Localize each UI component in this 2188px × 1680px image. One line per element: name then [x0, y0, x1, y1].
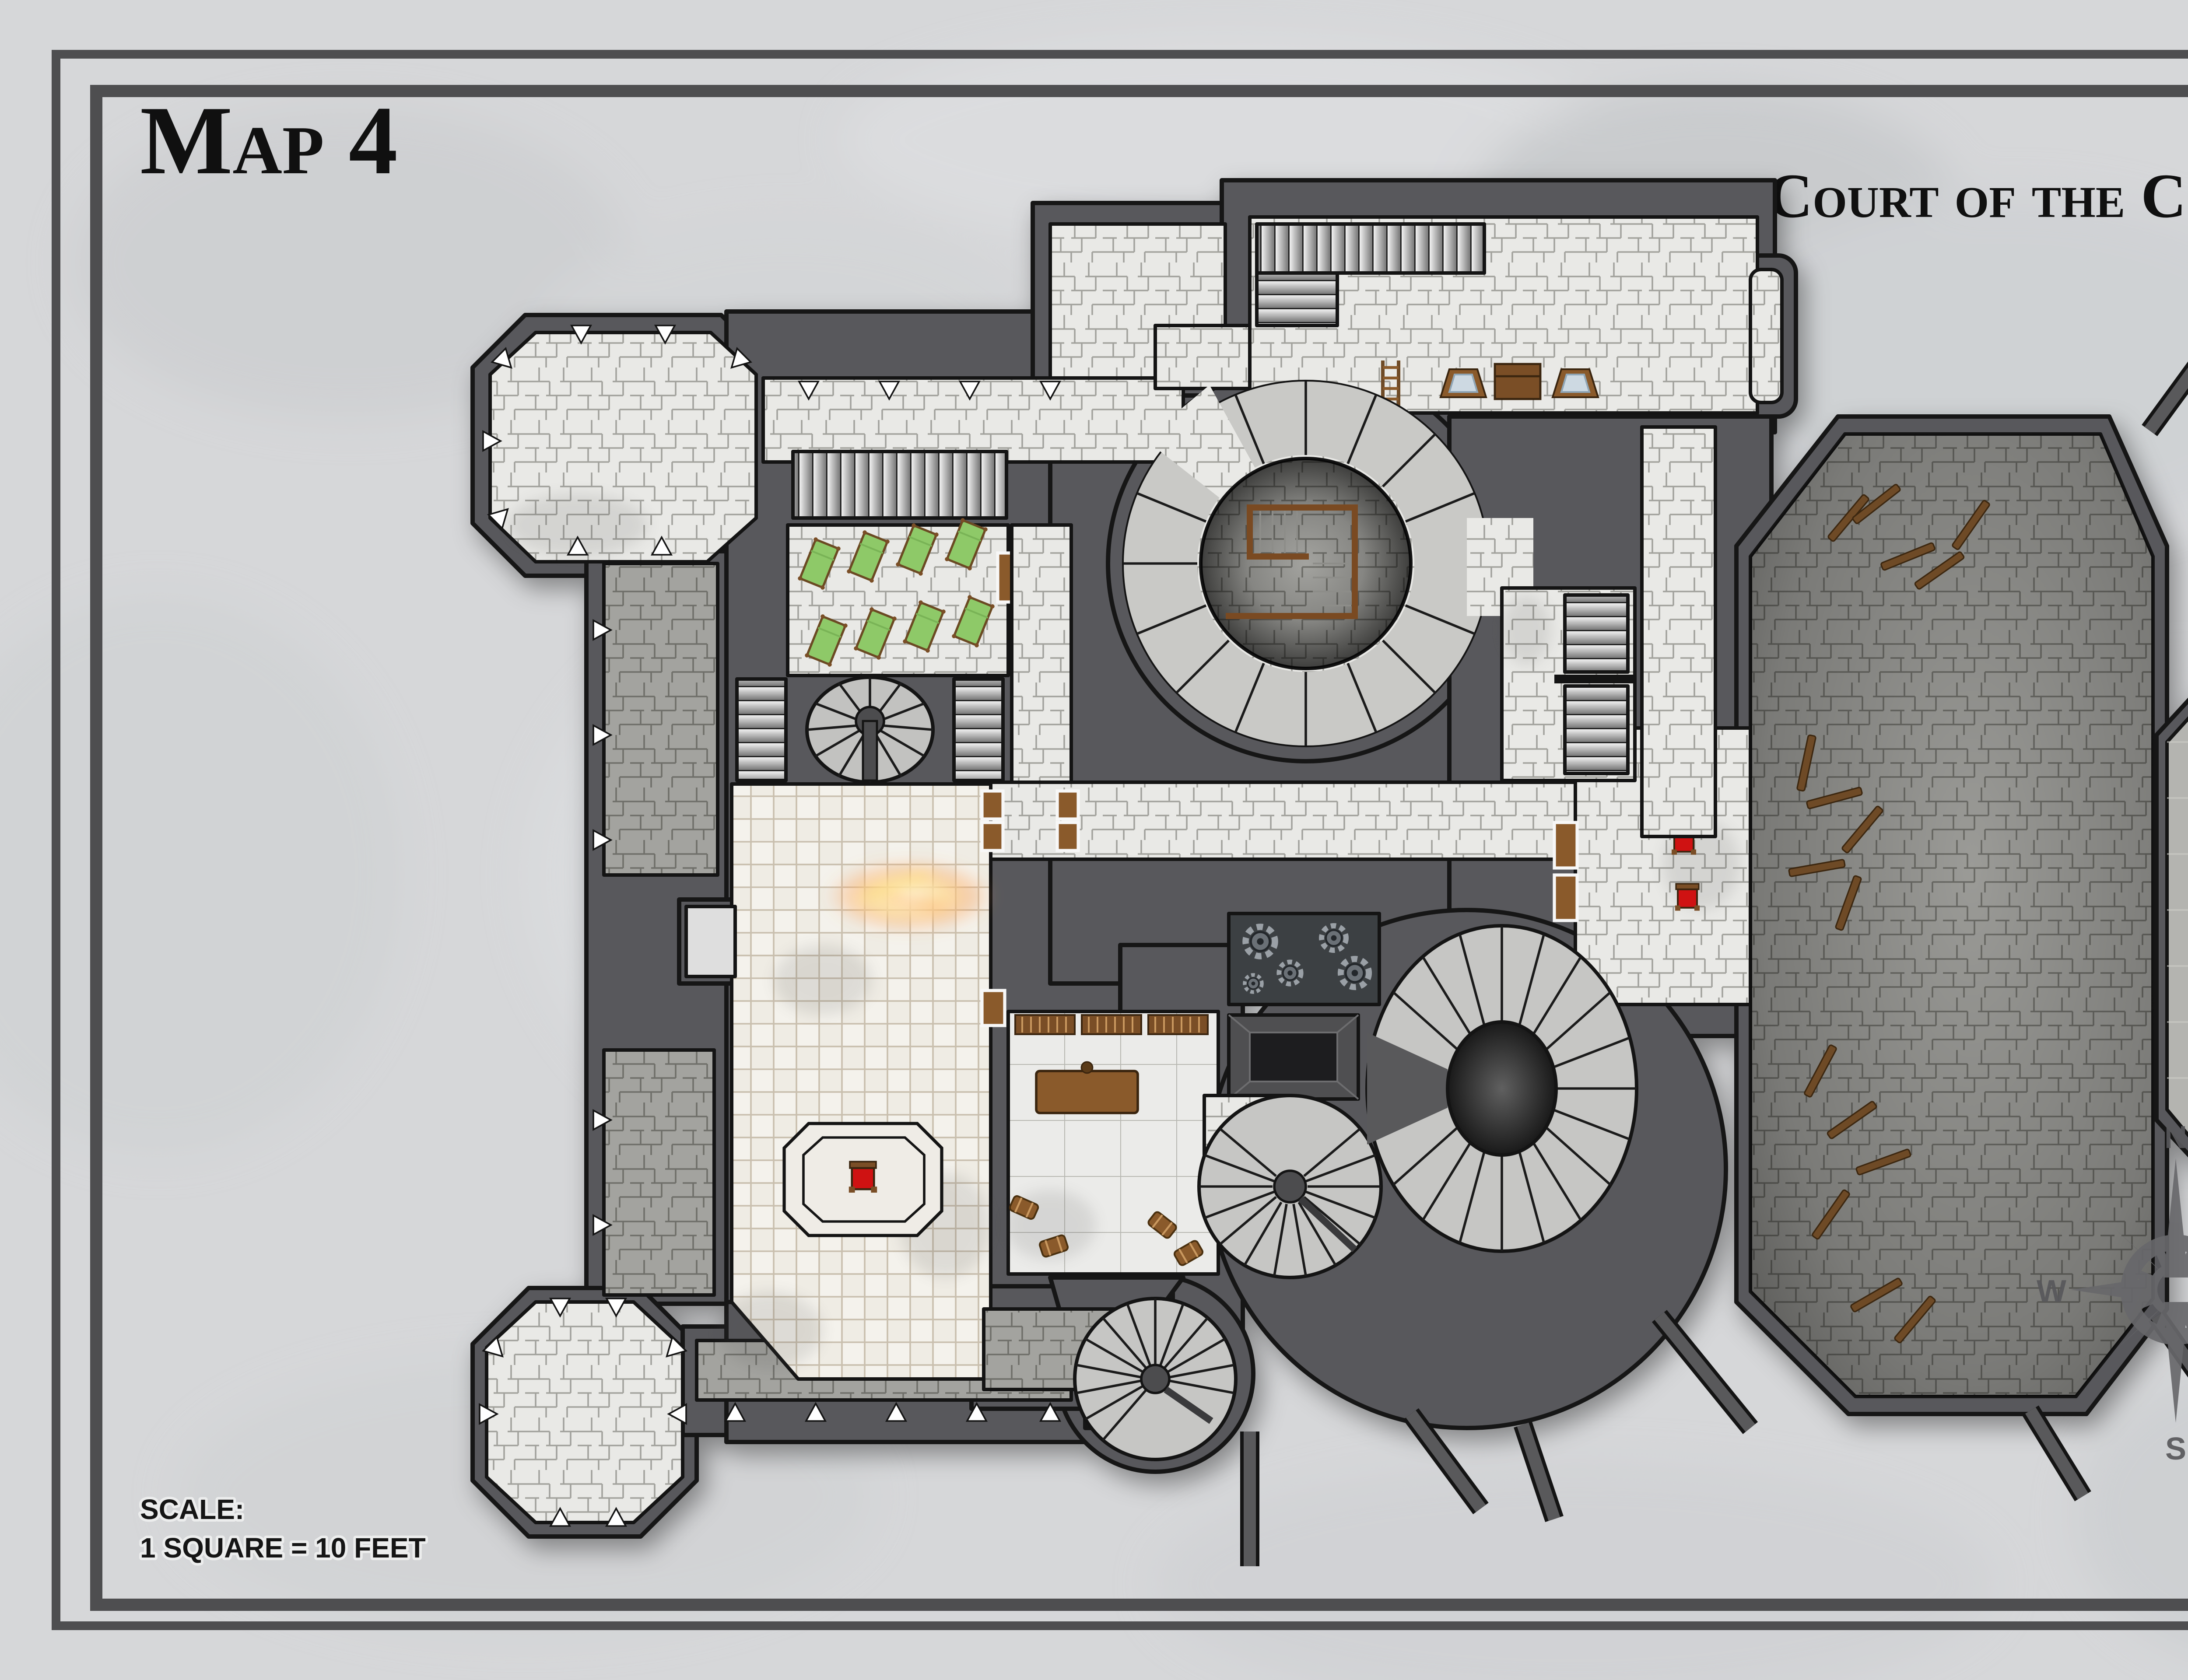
bookshelf-icon: [1015, 1015, 1075, 1034]
switchback-stair-room: [1502, 588, 1635, 780]
apse: [2167, 703, 2188, 1151]
red-chair-icon: [1675, 884, 1700, 911]
ring-stair: [1367, 926, 1637, 1251]
antechamber-door: [1554, 875, 1577, 920]
bookshelf-icon: [1082, 1015, 1141, 1034]
gear-icon: [1245, 927, 1275, 956]
study-room: [1005, 1011, 1218, 1274]
throne-room: [718, 784, 994, 1379]
oval-spiral-stair: [737, 677, 1003, 782]
desk-icon: [1036, 1071, 1138, 1113]
corridor-door: [982, 822, 1003, 850]
ring-stair-pit: [1448, 1022, 1556, 1155]
barracks-corridor-floor: [1012, 525, 1071, 784]
window-light-glow: [826, 859, 994, 933]
map-sheet: Map 4 Court of the Count: [0, 0, 2188, 1680]
mirror-table-icon: [1553, 369, 1598, 397]
throne-icon: [849, 1162, 877, 1193]
gear-icon: [1322, 926, 1346, 950]
gear-icon: [1245, 975, 1262, 992]
bookshelf-icon: [1148, 1015, 1208, 1034]
east-corridor-floor: [1642, 427, 1715, 836]
chest-icon: [1495, 364, 1540, 399]
corridor-door: [1057, 791, 1078, 819]
corridor-door: [1057, 822, 1078, 850]
map-title: Court of the Count: [1767, 161, 2188, 231]
west-flank-stair: [737, 679, 786, 780]
compass-north-label: N: [2164, 1120, 2187, 1155]
map-label: Map 4: [140, 86, 398, 195]
great-hall: [1750, 434, 2153, 1396]
gear-icon: [1279, 962, 1301, 984]
mirror-table-icon: [1441, 369, 1486, 397]
southwest-fan-stair: [1199, 1095, 1381, 1277]
study-door-west: [982, 990, 1005, 1025]
corridor-door: [982, 791, 1003, 819]
gear-icon: [1341, 959, 1369, 987]
machinery-room: [1229, 913, 1379, 1004]
scale-value: 1 SQUARE = 10 FEET: [140, 1532, 426, 1564]
west-rampart-floor-south: [604, 1050, 714, 1295]
grand-stair: [793, 451, 1006, 518]
throne-alcove-floor: [686, 906, 735, 976]
scale-label: SCALE:: [140, 1494, 244, 1525]
east-flank-stair: [954, 679, 1003, 780]
compass-west-label: W: [2037, 1274, 2066, 1309]
compass-south-label: S: [2165, 1431, 2186, 1466]
map-canvas: Map 4 Court of the Count: [0, 0, 2188, 1680]
antechamber-door: [1554, 822, 1577, 868]
southwest-tower-floor: [487, 1302, 683, 1522]
west-rampart-floor: [604, 563, 718, 875]
pit-room: [1229, 1015, 1358, 1099]
barracks-room: [788, 518, 1008, 675]
